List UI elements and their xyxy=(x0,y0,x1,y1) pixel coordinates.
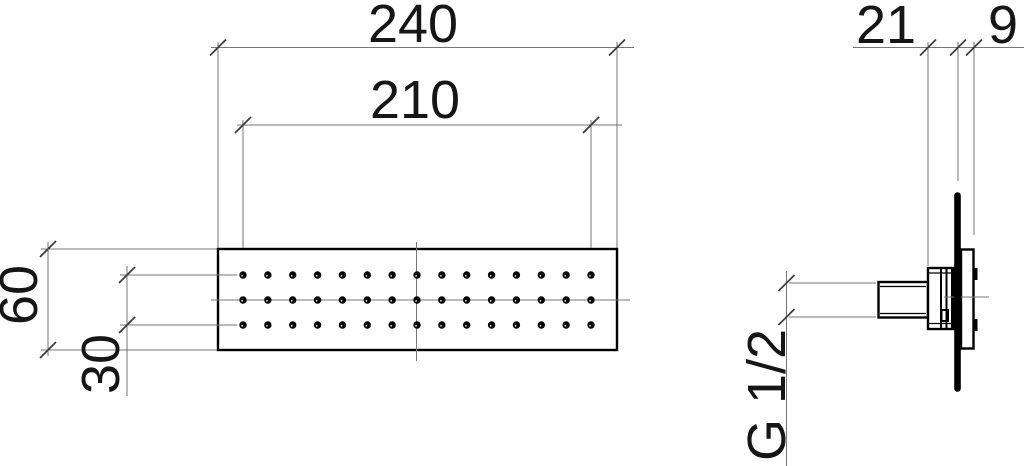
nozzle-dot xyxy=(413,271,420,278)
dimension-label-plate-depth: 9 xyxy=(988,0,1018,55)
nozzle-dot xyxy=(388,321,395,328)
nozzle-dot xyxy=(364,271,371,278)
nozzle-dot xyxy=(463,321,470,328)
nozzle-dot xyxy=(438,271,445,278)
dimension-210: 210 xyxy=(235,70,622,270)
rosette xyxy=(961,250,978,349)
thread-nipple xyxy=(879,282,929,318)
nozzle-dot xyxy=(562,271,569,278)
dimension-g12: G 1/2 xyxy=(737,271,876,466)
nozzle-dot-highlight xyxy=(564,275,566,277)
dimension-label-nozzle-field-width: 210 xyxy=(370,70,460,130)
nozzle-dot-highlight xyxy=(390,325,392,327)
nozzle-dot xyxy=(463,296,470,303)
nozzle-dot-highlight xyxy=(440,325,442,327)
dimension-label-mounting-depth: 21 xyxy=(856,0,916,55)
nozzle-dot-highlight xyxy=(316,300,318,302)
nozzle-dot-highlight xyxy=(465,275,467,277)
nozzle-dot-highlight xyxy=(465,300,467,302)
nozzle-dot-highlight xyxy=(266,300,268,302)
mounting-body xyxy=(928,268,954,329)
nozzle-dot-highlight xyxy=(266,275,268,277)
nozzle-dot-highlight xyxy=(465,325,467,327)
nozzle-dot-highlight xyxy=(390,275,392,277)
side-view: 21 9 G 1/2 xyxy=(737,0,1024,466)
nozzle-dot-highlight xyxy=(241,275,243,277)
nozzle-dot-highlight xyxy=(341,275,343,277)
drawing-canvas: 240 210 60 xyxy=(0,0,1024,466)
nozzle-dot xyxy=(289,271,296,278)
nozzle-dot-highlight xyxy=(291,275,293,277)
nozzle-dot xyxy=(587,296,594,303)
nozzle-dot xyxy=(513,271,520,278)
nozzle-dot-highlight xyxy=(365,300,367,302)
nozzle-dot-highlight xyxy=(316,325,318,327)
nozzle-dot-highlight xyxy=(241,325,243,327)
nozzle-dot xyxy=(488,271,495,278)
nozzle-dot xyxy=(364,296,371,303)
rosette-notch xyxy=(973,268,978,280)
nozzle-dot xyxy=(587,321,594,328)
nozzle-dot-highlight xyxy=(539,275,541,277)
rosette-notch xyxy=(973,319,978,331)
nozzle-dot-highlight xyxy=(266,325,268,327)
nozzle-dot xyxy=(364,321,371,328)
nozzle-dot-highlight xyxy=(564,325,566,327)
nozzle-dot-highlight xyxy=(539,300,541,302)
nozzle-dot xyxy=(562,321,569,328)
dimension-30: 30 xyxy=(71,266,237,396)
nozzle-dot xyxy=(587,271,594,278)
nozzle-dot xyxy=(388,296,395,303)
nozzle-dot xyxy=(538,296,545,303)
nozzle-dot-highlight xyxy=(539,325,541,327)
nozzle-dot xyxy=(264,296,271,303)
nozzle-dot-highlight xyxy=(415,300,417,302)
nozzle-dot xyxy=(339,271,346,278)
nozzle-dot-highlight xyxy=(515,300,517,302)
nozzle-dot-highlight xyxy=(241,300,243,302)
nozzle-dot-highlight xyxy=(291,300,293,302)
front-view: 240 210 60 xyxy=(0,0,634,396)
nozzle-dot-highlight xyxy=(365,275,367,277)
nozzle-dot xyxy=(562,296,569,303)
nozzle-dot-highlight xyxy=(589,325,591,327)
nozzle-dot-highlight xyxy=(589,275,591,277)
nozzle-dot xyxy=(538,271,545,278)
nozzle-dot xyxy=(438,321,445,328)
nozzle-dot xyxy=(413,296,420,303)
dimension-label-overall-width: 240 xyxy=(368,0,458,54)
nozzle-dot-highlight xyxy=(390,300,392,302)
nozzle-dot xyxy=(339,321,346,328)
nozzle-dot xyxy=(463,271,470,278)
nozzle-dot xyxy=(513,321,520,328)
nozzle-dot xyxy=(264,321,271,328)
nozzle-dot xyxy=(239,321,246,328)
nozzle-dot xyxy=(314,296,321,303)
nozzle-dot xyxy=(264,271,271,278)
nozzle-dot-highlight xyxy=(291,325,293,327)
technical-drawing: 240 210 60 xyxy=(0,0,1024,466)
dimension-label-row-span: 30 xyxy=(71,334,131,394)
nozzle-dot xyxy=(289,296,296,303)
nozzle-dot xyxy=(538,321,545,328)
nozzle-dot-highlight xyxy=(316,275,318,277)
nozzle-dot xyxy=(438,296,445,303)
nipple-outline xyxy=(879,282,929,318)
dimension-21-9: 21 9 xyxy=(853,0,1024,266)
nozzle-dot xyxy=(339,296,346,303)
nozzle-dot xyxy=(314,321,321,328)
nozzle-dot xyxy=(513,296,520,303)
nozzle-dot-highlight xyxy=(490,325,492,327)
nozzle-dot-highlight xyxy=(515,275,517,277)
nozzle-dot-highlight xyxy=(564,300,566,302)
nozzle-dot-highlight xyxy=(365,325,367,327)
dimension-label-overall-height: 60 xyxy=(0,265,49,325)
nozzle-dot-highlight xyxy=(490,300,492,302)
nozzle-dot-highlight xyxy=(341,300,343,302)
nozzle-dot xyxy=(239,271,246,278)
nozzle-dot-highlight xyxy=(440,275,442,277)
nozzle-dot-highlight xyxy=(440,300,442,302)
nozzle-dot-highlight xyxy=(415,275,417,277)
rosette-outline xyxy=(961,250,974,349)
nozzle-dot xyxy=(314,271,321,278)
nozzle-dot xyxy=(388,271,395,278)
nozzle-dot-highlight xyxy=(490,275,492,277)
nozzle-dot xyxy=(289,321,296,328)
nozzle-dot xyxy=(488,321,495,328)
thread-size-label: G 1/2 xyxy=(737,329,797,461)
nozzle-dot xyxy=(239,296,246,303)
nozzle-dot-highlight xyxy=(589,300,591,302)
nozzle-dot-highlight xyxy=(515,325,517,327)
nozzle-dot xyxy=(413,321,420,328)
nozzle-dot-highlight xyxy=(415,325,417,327)
nozzle-dot xyxy=(488,296,495,303)
nozzle-dot-highlight xyxy=(341,325,343,327)
